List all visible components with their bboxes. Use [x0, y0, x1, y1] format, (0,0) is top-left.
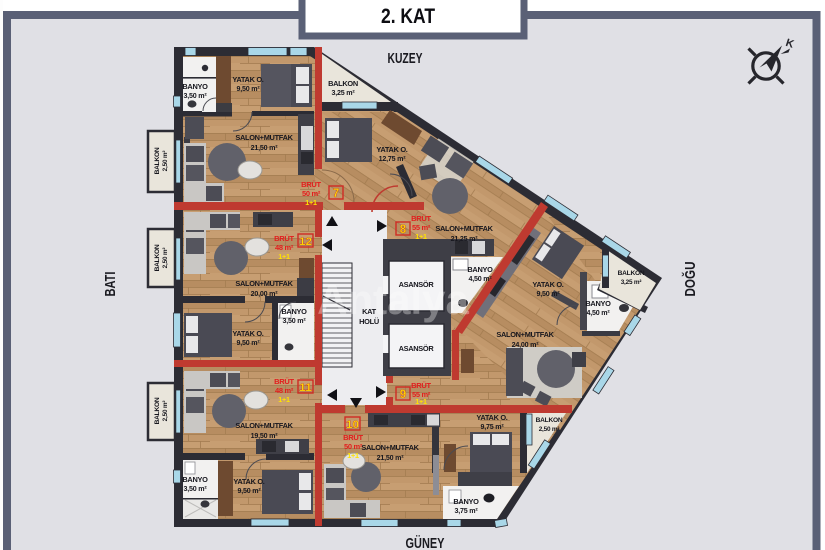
svg-text:SALON+MUTFAK: SALON+MUTFAK [235, 133, 293, 142]
svg-text:4,50 m²: 4,50 m² [586, 309, 610, 317]
svg-text:9,50 m²: 9,50 m² [236, 85, 260, 93]
svg-text:1+1: 1+1 [415, 232, 427, 241]
svg-text:24,00 m²: 24,00 m² [512, 341, 540, 349]
svg-text:20,00 m²: 20,00 m² [251, 290, 279, 298]
svg-text:GÜNEY: GÜNEY [406, 535, 445, 550]
svg-text:BALKON: BALKON [154, 147, 161, 174]
svg-text:BANYO: BANYO [585, 299, 611, 308]
svg-text:YATAK O.: YATAK O. [476, 413, 507, 422]
svg-text:2,50 m²: 2,50 m² [539, 426, 560, 433]
svg-text:8: 8 [400, 224, 407, 236]
svg-text:HOLÜ: HOLÜ [359, 317, 379, 326]
svg-text:BANYO: BANYO [453, 497, 479, 506]
svg-text:BALKON: BALKON [154, 397, 161, 424]
svg-text:YATAK O.: YATAK O. [232, 75, 263, 84]
svg-text:2,50 m²: 2,50 m² [162, 151, 169, 172]
svg-text:11: 11 [299, 382, 312, 394]
svg-text:48 m²: 48 m² [275, 386, 294, 395]
svg-text:3,75 m²: 3,75 m² [454, 507, 478, 515]
svg-text:BANYO: BANYO [281, 307, 307, 316]
svg-text:1+1: 1+1 [415, 397, 427, 406]
svg-text:KAT: KAT [362, 307, 377, 316]
svg-text:YATAK O.: YATAK O. [376, 145, 407, 154]
svg-text:SALON+MUTFAK: SALON+MUTFAK [235, 421, 293, 430]
svg-text:2,50 m²: 2,50 m² [162, 248, 169, 269]
svg-text:9,50 m²: 9,50 m² [237, 487, 261, 495]
svg-text:BALKON: BALKON [328, 79, 358, 88]
svg-text:3,50 m²: 3,50 m² [183, 485, 207, 493]
svg-text:SALON+MUTFAK: SALON+MUTFAK [235, 279, 293, 288]
svg-text:9,75 m²: 9,75 m² [480, 423, 504, 431]
svg-text:19,50 m²: 19,50 m² [251, 432, 279, 440]
svg-text:BATI: BATI [102, 272, 119, 297]
svg-text:1+1: 1+1 [278, 252, 290, 261]
svg-text:BANYO: BANYO [182, 82, 208, 91]
svg-text:48 m²: 48 m² [275, 243, 294, 252]
svg-text:1+1: 1+1 [278, 395, 290, 404]
svg-text:1+1: 1+1 [305, 198, 317, 207]
svg-text:9: 9 [400, 389, 406, 401]
svg-text:YATAK O.: YATAK O. [232, 329, 263, 338]
svg-text:SALON+MUTFAK: SALON+MUTFAK [496, 330, 554, 339]
svg-text:Antalya: Antalya [317, 276, 469, 323]
svg-text:3,25 m²: 3,25 m² [331, 89, 355, 97]
svg-text:BALKON: BALKON [154, 244, 161, 271]
svg-text:ASANSÖR: ASANSÖR [399, 344, 435, 353]
svg-text:BRÜT: BRÜT [274, 234, 294, 243]
svg-text:50 m²: 50 m² [302, 189, 321, 198]
svg-text:BALKON: BALKON [618, 270, 645, 277]
svg-text:BRÜT: BRÜT [343, 433, 363, 442]
svg-text:2. KAT: 2. KAT [381, 5, 435, 28]
svg-text:BANYO: BANYO [182, 475, 208, 484]
svg-text:3,50 m²: 3,50 m² [183, 92, 207, 100]
svg-text:BRÜT: BRÜT [274, 377, 294, 386]
svg-text:21,25 m²: 21,25 m² [451, 235, 479, 243]
svg-text:12: 12 [299, 236, 312, 248]
svg-text:4,50 m²: 4,50 m² [468, 275, 492, 283]
svg-text:KUZEY: KUZEY [388, 50, 423, 67]
svg-text:50 m²: 50 m² [344, 442, 363, 451]
svg-text:2,50 m²: 2,50 m² [162, 401, 169, 422]
svg-text:12,75 m²: 12,75 m² [379, 155, 407, 163]
svg-text:3,25 m²: 3,25 m² [621, 279, 642, 286]
svg-text:DOĞU: DOĞU [681, 262, 699, 297]
svg-text:21,50 m²: 21,50 m² [377, 454, 405, 462]
svg-text:ASANSÖR: ASANSÖR [399, 280, 435, 289]
svg-text:21,50 m²: 21,50 m² [251, 144, 279, 152]
svg-text:BRÜT: BRÜT [411, 381, 431, 390]
svg-text:YATAK O.: YATAK O. [532, 280, 563, 289]
svg-text:9,50 m²: 9,50 m² [536, 290, 560, 298]
svg-text:55 m²: 55 m² [412, 223, 431, 232]
svg-text:SALON+MUTFAK: SALON+MUTFAK [435, 224, 493, 233]
svg-text:BRÜT: BRÜT [411, 214, 431, 223]
svg-text:SALON+MUTFAK: SALON+MUTFAK [361, 443, 419, 452]
svg-text:1+1: 1+1 [347, 451, 359, 460]
svg-text:YATAK O.: YATAK O. [233, 477, 264, 486]
svg-text:9,50 m²: 9,50 m² [236, 339, 260, 347]
svg-text:BANYO: BANYO [467, 265, 493, 274]
svg-text:10: 10 [346, 419, 359, 431]
svg-text:BRÜT: BRÜT [301, 180, 321, 189]
svg-text:7: 7 [333, 188, 339, 200]
svg-text:BALKON: BALKON [536, 417, 563, 424]
svg-text:3,50 m²: 3,50 m² [282, 317, 306, 325]
